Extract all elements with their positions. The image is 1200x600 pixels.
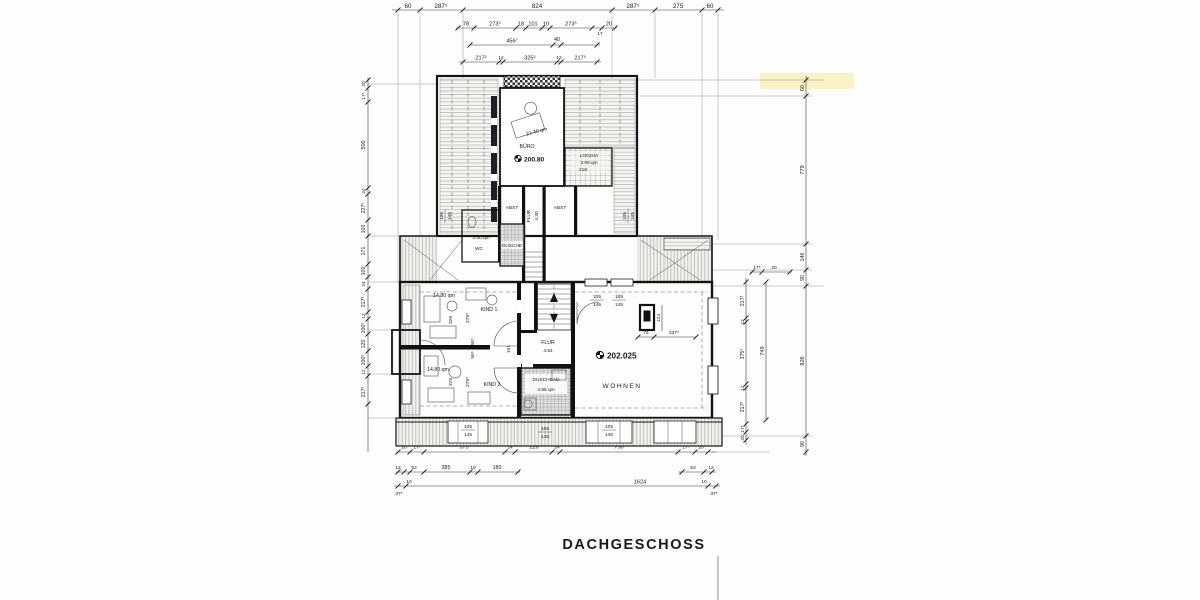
dim-label: 275 — [673, 3, 684, 10]
svg-text:105: 105 — [593, 294, 601, 300]
dim-label: 12 — [361, 369, 367, 375]
room-area: 3.69 qm — [580, 160, 597, 166]
svg-text:105: 105 — [464, 424, 472, 430]
dim-label: 101 — [506, 345, 512, 353]
room-area: 4.85 qm — [537, 387, 554, 393]
yellow-highlight — [760, 73, 854, 89]
level-marker-lower: 202.025 — [596, 351, 637, 361]
dim-label: 53 — [411, 465, 417, 471]
dim-corner-right: 17⁵ 20 — [750, 265, 793, 275]
dim-label: 78 — [463, 22, 469, 28]
dim-label: 124 — [656, 314, 662, 322]
window-right-1 — [708, 298, 718, 324]
dim-label: 100 — [361, 225, 367, 234]
dim-label: 55⁵ — [470, 338, 476, 345]
dim-label: 100⁵ — [361, 323, 367, 334]
window-size-pair: 105 145 — [590, 294, 604, 308]
roof-band-left — [400, 236, 437, 282]
dim-label: 171 — [361, 247, 367, 256]
dim-label: 375⁵ — [740, 349, 746, 360]
room-area: 3.50 qm — [472, 235, 489, 241]
dim-label: 279⁵ — [465, 377, 471, 387]
dim-label: 10 — [701, 479, 707, 485]
dim-row-top-2: 78 273⁵ 18 101 10 273⁵ 17 20 — [456, 21, 618, 38]
dim-label: 217² — [361, 387, 367, 398]
dim-label: 273⁵ — [565, 21, 577, 28]
room-label: LOGGIA — [580, 153, 599, 159]
window-right-2 — [708, 366, 718, 394]
kind1-door-arc — [494, 321, 519, 346]
dim-label: 40 — [554, 37, 560, 43]
dim-label: 12 — [708, 465, 714, 471]
buero-window-band — [504, 76, 560, 87]
floor-plan-drawing: 60 287⁵ 824 287⁵ 275 60 78 273⁵ 18 101 1… — [0, 0, 1200, 600]
room-label: WOHNEN — [602, 383, 641, 390]
room-label: FLUR — [541, 340, 555, 346]
svg-text:145: 145 — [593, 302, 601, 308]
dim-label: 227⁵ — [361, 203, 367, 214]
svg-text:145: 145 — [605, 432, 613, 438]
dim-row-bottom-3: 37⁵ 10 1624 10 37⁵ — [394, 479, 720, 497]
room-label: BÜRO — [520, 143, 535, 150]
dim-label: 826 — [800, 356, 806, 365]
dim-label: 217² — [740, 402, 746, 413]
svg-text:105: 105 — [615, 294, 623, 300]
dim-label: 74 — [643, 330, 649, 336]
stair-treads-upper — [524, 252, 544, 277]
dim-label: 100⁵ — [361, 355, 367, 366]
dim-right-total: 749 — [760, 280, 769, 423]
dim-label: 90 — [800, 275, 806, 281]
dim-label: 379 — [448, 378, 454, 386]
dim-label: 500 — [361, 140, 367, 149]
room-area: 4.54 — [543, 348, 553, 354]
dim-label: 146 — [800, 253, 806, 262]
dim-label: 60 — [405, 3, 412, 10]
dim-label: 100 — [361, 267, 367, 276]
room-label: KIND 1 — [481, 307, 498, 313]
room-abst-right — [544, 186, 576, 236]
dim-label: 37⁵ — [710, 491, 717, 497]
dim-label: 60 — [800, 85, 806, 91]
dim-label: 18 — [518, 22, 524, 28]
lower-block: 14.80 qm KIND 1 329 279⁵ 14.80 qm KIND 2… — [392, 279, 718, 418]
dim-label: 325⁵ — [524, 55, 536, 62]
dim-label: 60 — [707, 3, 714, 10]
dim-label: 17⁵ — [361, 92, 367, 99]
window-top-2 — [611, 279, 633, 286]
room-flur-upper — [524, 186, 544, 282]
dim-label: 90 — [800, 441, 806, 447]
dim-label: 101 — [528, 22, 537, 28]
svg-text:105: 105 — [541, 426, 549, 432]
window-size-pair: 105 145 — [612, 294, 626, 308]
dim-label: 37⁵ — [395, 491, 402, 497]
dim-label: 237⁵ — [669, 330, 679, 336]
kind2-door-arc — [494, 368, 519, 393]
drawing-title: DACHGESCHOSS — [562, 537, 705, 553]
dim-label: 10 — [543, 22, 549, 28]
dim-label: 12 — [740, 385, 746, 391]
svg-text:145: 145 — [630, 212, 636, 220]
dim-label: 20 — [740, 435, 746, 441]
window-left-2 — [402, 380, 411, 404]
level-value: 200.80 — [524, 157, 545, 164]
dim-label: 24 — [361, 188, 367, 194]
dim-row-top-4: 217² 12 325⁵ 12 217³ — [459, 55, 601, 65]
dim-label: 1624 — [634, 480, 646, 486]
level-value: 202.025 — [607, 352, 637, 361]
svg-text:145: 145 — [541, 434, 549, 440]
room-label: KIND 2 — [484, 382, 501, 388]
dim-row-bottom-2: 12 53 385 10 180 53 12 — [395, 465, 716, 475]
svg-text:145: 145 — [615, 302, 623, 308]
dim-label: 279⁵ — [465, 313, 471, 323]
dim-label: 824 — [532, 3, 543, 10]
dim-chain-left: 20 17⁵ 500 24 227⁵ 100 171 100 24 217³ 1… — [361, 78, 371, 453]
dim-label: 10 — [470, 465, 476, 471]
bottom-eaves-band: 105 145 105 145 105 145 — [396, 418, 722, 446]
dim-label: 53 — [690, 465, 696, 471]
upper-block: LOGGIA 3.69 qm 218 21.40 qm BÜRO 200.80 … — [437, 76, 637, 282]
dim-label: 12 — [498, 55, 504, 61]
svg-text:105: 105 — [605, 424, 613, 430]
dim-chain-right-outer: 60 779 146 90 826 90 — [800, 76, 809, 456]
dim-label: 456⁷ — [506, 38, 517, 45]
room-label: ABST — [554, 205, 567, 211]
staircase — [538, 284, 572, 330]
dim-label: 24 — [361, 281, 367, 287]
svg-text:105: 105 — [622, 212, 628, 220]
dim-label: 385 — [442, 465, 451, 471]
svg-text:105: 105 — [439, 212, 445, 220]
dim-label: 20 — [361, 81, 367, 87]
window-left-1 — [402, 300, 411, 324]
band-window-3 — [654, 421, 696, 443]
dim-label: 120 — [361, 340, 367, 349]
dim-label: 217³ — [740, 296, 746, 307]
dim-label: 287⁵ — [627, 3, 640, 10]
room-label: ABST — [506, 205, 519, 211]
dim-label: 12 — [395, 465, 401, 471]
dim-label: 749 — [760, 346, 766, 355]
dim-label: 12 — [361, 313, 367, 319]
dim-chain-right-inner: 217³ 12 375⁵ 12 217² 17⁵ 20 — [740, 278, 749, 444]
dim-row-top-3: 456⁷ 40 — [468, 37, 601, 48]
svg-text:145: 145 — [464, 432, 472, 438]
dim-label: 20 — [771, 265, 777, 271]
dim-label: 12 — [556, 55, 562, 61]
dim-label: 329 — [448, 316, 454, 324]
dim-label: 17 — [597, 31, 603, 37]
dim-label: 12 — [740, 319, 746, 325]
dim-label: 17⁵ — [753, 265, 760, 271]
room-label: WC — [475, 246, 484, 252]
floor-plan-page: 60 287⁵ 824 287⁵ 275 60 78 273⁵ 18 101 1… — [0, 0, 1200, 600]
dim-label: 20 — [606, 22, 612, 28]
dim-label: 55⁶ — [470, 351, 476, 358]
room-area: 4.30 — [534, 211, 540, 221]
room-label: DUSCHE — [502, 243, 522, 249]
dim-label: 217² — [475, 56, 486, 62]
dim-row-top-1: 60 287⁵ 824 287⁵ 275 60 — [392, 3, 724, 13]
room-label: FLUR — [526, 209, 532, 222]
dim-label: 180 — [493, 465, 502, 471]
kind2-furniture — [424, 356, 490, 404]
dim-label: 287⁵ — [435, 3, 448, 10]
dim-label: 779 — [800, 165, 806, 174]
dim-label: 10 — [406, 479, 412, 485]
room-dim: 218 — [579, 167, 587, 173]
svg-text:145: 145 — [447, 212, 453, 220]
dim-label: 273⁵ — [489, 21, 501, 28]
window-top-1 — [585, 279, 607, 286]
dim-label: 17⁵ — [740, 425, 746, 432]
dim-label: 217³ — [574, 56, 585, 62]
dim-label: 217³ — [361, 297, 367, 308]
